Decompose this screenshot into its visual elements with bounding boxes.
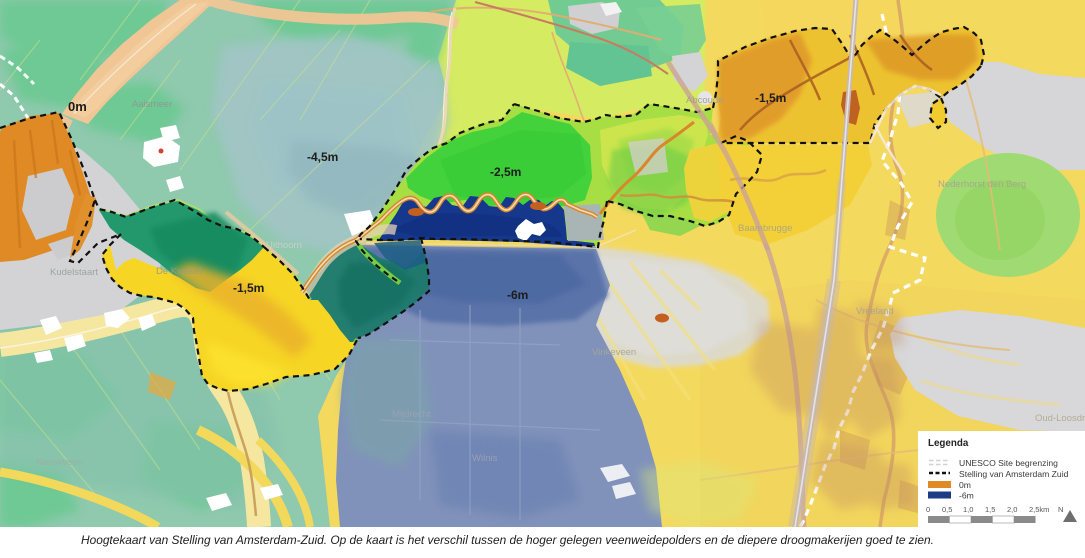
svg-text:-6m: -6m [959,491,974,501]
svg-text:-1,5m: -1,5m [233,281,264,295]
svg-text:Legenda: Legenda [928,438,969,449]
svg-text:Nederhorst den Berg: Nederhorst den Berg [938,179,1026,190]
svg-text:Kudelstaart: Kudelstaart [50,267,98,278]
svg-text:Vinkeveen: Vinkeveen [592,347,636,358]
svg-text:1,0: 1,0 [963,505,973,514]
svg-text:Uithoorn: Uithoorn [266,240,302,251]
svg-text:0m: 0m [68,99,87,114]
svg-text:Abcoude: Abcoude [686,95,724,106]
svg-text:-1,5m: -1,5m [755,91,786,105]
svg-text:Aalsmeer: Aalsmeer [132,99,172,110]
svg-text:-6m: -6m [507,288,528,302]
svg-text:Baambrugge: Baambrugge [738,223,792,234]
svg-text:0m: 0m [959,480,971,490]
svg-text:N: N [1058,505,1063,514]
svg-text:0: 0 [926,505,930,514]
svg-text:-4,5m: -4,5m [307,150,338,164]
svg-text:Mijdrecht: Mijdrecht [392,409,431,420]
svg-text:Nieuwveen: Nieuwveen [36,457,83,468]
svg-text:1,5: 1,5 [985,505,995,514]
svg-text:UNESCO Site begrenzing: UNESCO Site begrenzing [959,458,1058,468]
svg-text:Vreeland: Vreeland [856,306,894,317]
svg-text:Wilnis: Wilnis [472,453,498,464]
svg-text:2,5km: 2,5km [1029,505,1049,514]
svg-text:Stelling van Amsterdam Zuid: Stelling van Amsterdam Zuid [959,469,1069,479]
svg-text:-2,5m: -2,5m [490,165,521,179]
svg-text:De Kwakel: De Kwakel [156,266,201,277]
svg-text:Oud-Loosdr: Oud-Loosdr [1035,413,1085,424]
svg-text:2,0: 2,0 [1007,505,1017,514]
svg-text:0,5: 0,5 [942,505,952,514]
